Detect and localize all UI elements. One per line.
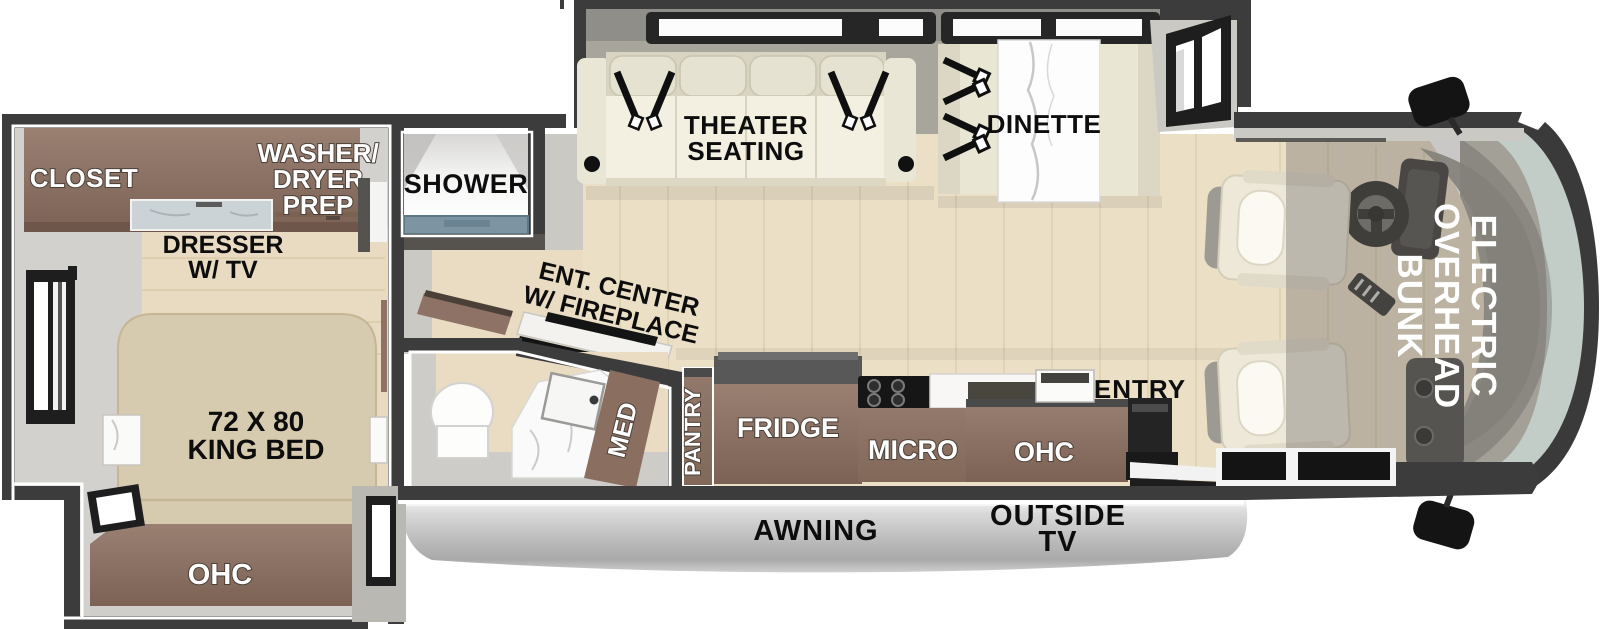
- svg-text:ELECTRIC: ELECTRIC: [1464, 215, 1503, 398]
- svg-text:BUNK: BUNK: [1390, 253, 1429, 358]
- svg-text:TV: TV: [1038, 526, 1077, 558]
- svg-text:KING BED: KING BED: [188, 434, 325, 465]
- svg-text:SHOWER: SHOWER: [404, 169, 529, 199]
- svg-text:SEATING: SEATING: [687, 136, 804, 166]
- svg-text:DRESSER: DRESSER: [163, 231, 284, 259]
- svg-text:DINETTE: DINETTE: [987, 109, 1102, 139]
- svg-text:OHC: OHC: [1014, 437, 1074, 467]
- svg-text:72 X 80: 72 X 80: [208, 406, 305, 437]
- svg-text:AWNING: AWNING: [753, 515, 878, 547]
- svg-text:CLOSET: CLOSET: [30, 163, 138, 193]
- svg-text:OVERHEAD: OVERHEAD: [1427, 203, 1466, 409]
- svg-text:OHC: OHC: [188, 559, 253, 591]
- svg-text:W/ TV: W/ TV: [188, 256, 258, 284]
- svg-text:PREP: PREP: [283, 190, 354, 220]
- svg-text:PANTRY: PANTRY: [680, 388, 705, 476]
- svg-text:MICRO: MICRO: [868, 435, 958, 465]
- svg-text:FRIDGE: FRIDGE: [737, 413, 839, 443]
